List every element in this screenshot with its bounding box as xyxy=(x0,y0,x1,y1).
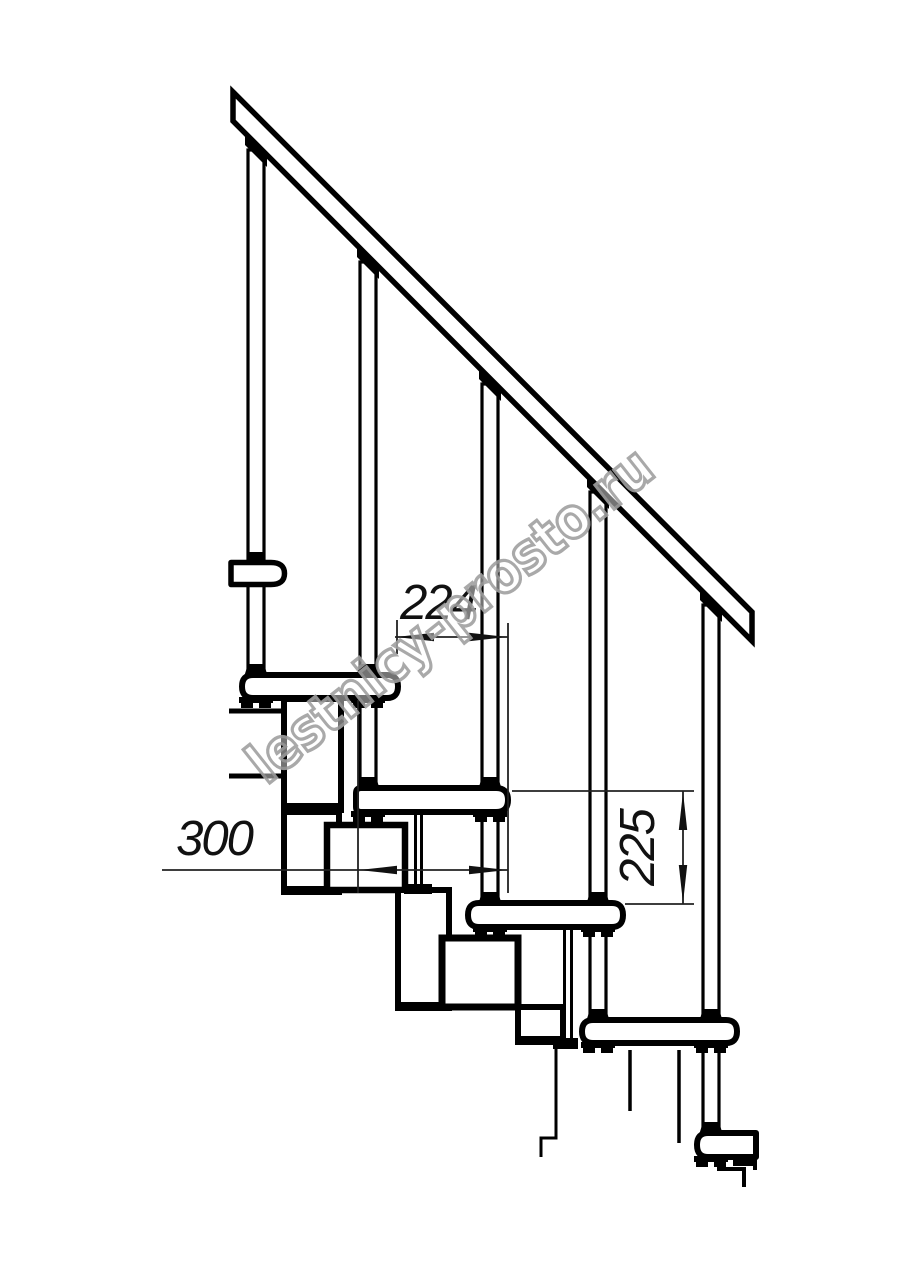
baluster-foot xyxy=(244,664,268,677)
baluster-foot xyxy=(356,777,380,790)
baluster-foot xyxy=(478,777,502,790)
tread-4 xyxy=(582,1020,737,1043)
dimension-label-225: 225 xyxy=(611,807,665,887)
baluster-collar xyxy=(248,552,264,564)
baluster-foot xyxy=(478,892,502,905)
tread-3 xyxy=(468,903,623,927)
tread-2 xyxy=(356,788,508,812)
staircase-technical-drawing: 224 300 225 lestnicy-prosto.ru xyxy=(0,0,914,1280)
baluster-1 xyxy=(248,150,264,677)
tube-foot xyxy=(553,1038,578,1049)
module-box-under-tread-3 xyxy=(327,825,405,890)
module-box-under-tread-4 xyxy=(442,938,518,1007)
baluster-foot xyxy=(699,1009,723,1022)
baluster-bracket xyxy=(231,563,285,585)
drawing-canvas: 224 300 225 lestnicy-prosto.ru xyxy=(0,0,914,1280)
baluster-foot xyxy=(586,892,610,905)
baluster-4 xyxy=(590,492,606,1022)
tread-5 xyxy=(697,1133,756,1157)
baluster-foot xyxy=(586,1009,610,1022)
dimension-label-300: 300 xyxy=(176,812,254,866)
baluster-5 xyxy=(703,605,719,1135)
connector-tube-4 xyxy=(518,1007,563,1040)
baluster-foot xyxy=(699,1122,723,1135)
baluster-3 xyxy=(482,384,498,905)
tube-foot xyxy=(404,884,432,894)
